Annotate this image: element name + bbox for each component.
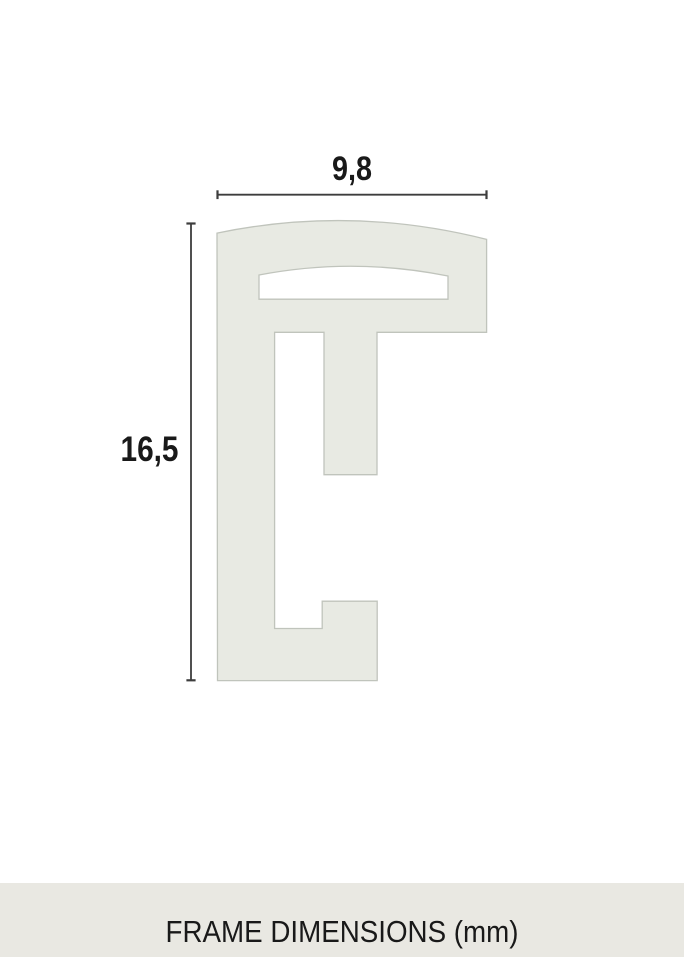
- svg-text:16,5: 16,5: [121, 430, 179, 469]
- svg-text:9,8: 9,8: [332, 150, 372, 188]
- svg-text:FRAME DIMENSIONS (mm): FRAME DIMENSIONS (mm): [166, 914, 519, 949]
